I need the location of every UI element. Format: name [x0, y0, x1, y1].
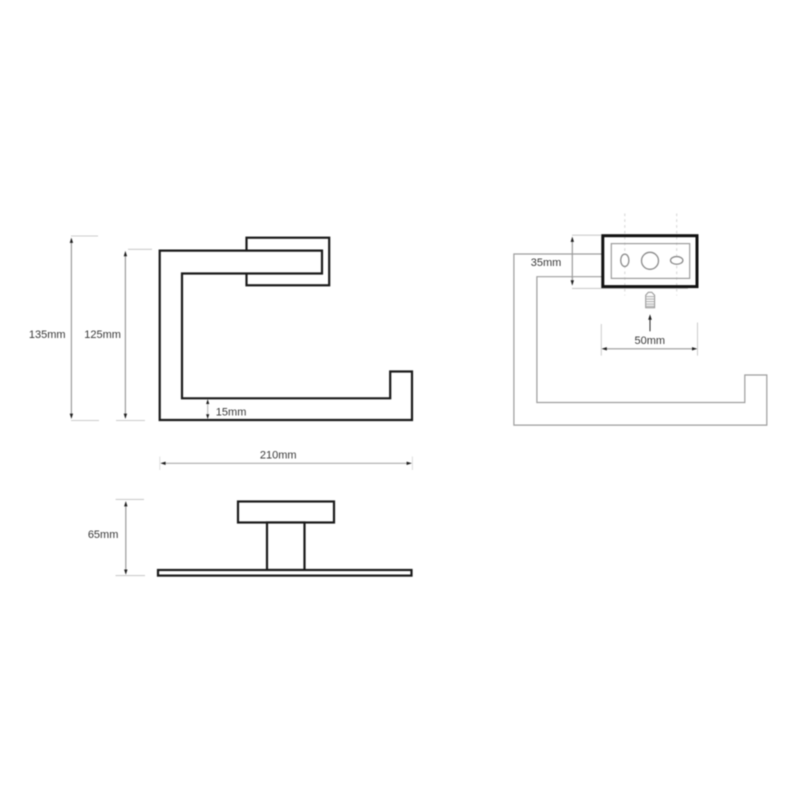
- svg-text:210mm: 210mm: [260, 449, 297, 461]
- svg-text:125mm: 125mm: [84, 329, 121, 341]
- svg-text:35mm: 35mm: [531, 257, 562, 269]
- svg-text:15mm: 15mm: [216, 406, 247, 418]
- svg-text:135mm: 135mm: [29, 329, 66, 341]
- svg-text:50mm: 50mm: [635, 335, 666, 347]
- svg-text:65mm: 65mm: [88, 529, 119, 541]
